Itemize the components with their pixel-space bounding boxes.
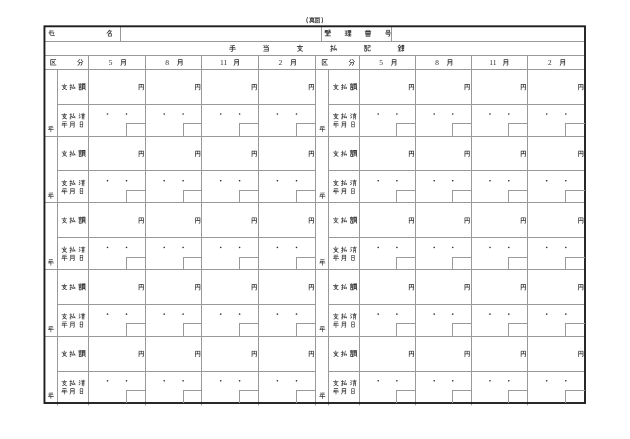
svg-text:11: 11: [220, 58, 228, 67]
svg-text:11: 11: [489, 58, 497, 67]
svg-text:8: 8: [435, 58, 439, 67]
svg-text:8: 8: [165, 58, 169, 67]
svg-text:5: 5: [379, 58, 383, 67]
svg-text:2: 2: [279, 58, 283, 67]
svg-text:2: 2: [548, 58, 552, 67]
svg-text:5: 5: [109, 58, 113, 67]
